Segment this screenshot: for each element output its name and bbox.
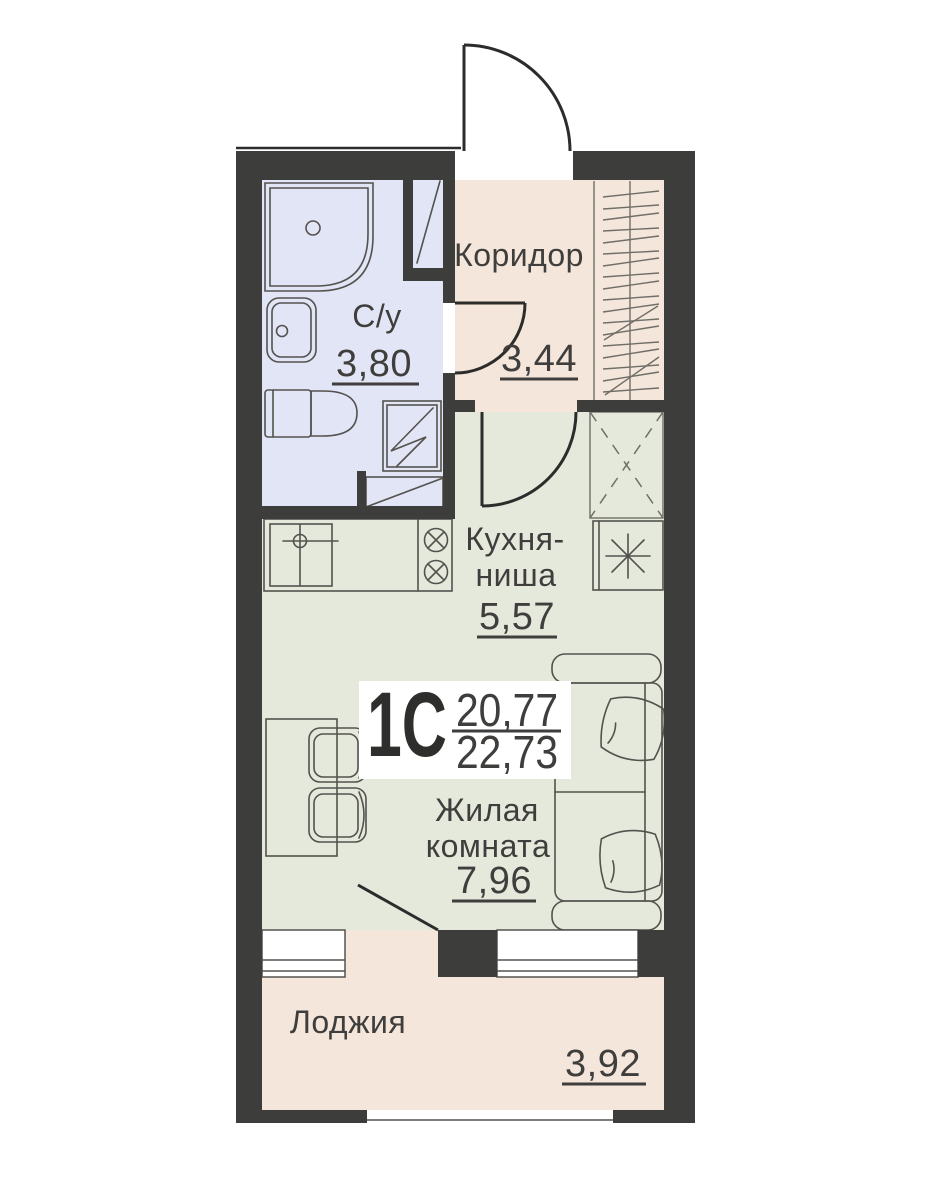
apartment-info-badge: 1С 20,77 22,73 (359, 674, 571, 779)
entrance-door-swing (464, 45, 570, 151)
kitchen-label-line2: ниша (475, 557, 556, 593)
kitchen-area: 5,57 (479, 596, 555, 638)
loggia-label: Лоджия (290, 1004, 406, 1040)
balcony-door-opening (345, 930, 438, 977)
window (262, 930, 345, 977)
window (497, 930, 638, 977)
corridor-label: Коридор (454, 237, 584, 273)
bathroom-label: С/у (352, 298, 402, 334)
loggia-window (367, 1110, 613, 1123)
living-area-label: 7,96 (456, 860, 532, 902)
living-label-line1: Жилая (435, 792, 539, 828)
bathroom-area: 3,80 (336, 343, 412, 385)
loggia-area: 3,92 (565, 1043, 641, 1085)
floor-plan: 1С 20,77 22,73 Коридор 3,44 С/у 3,80 Кух… (0, 0, 945, 1181)
living-label-line2: комната (426, 828, 551, 864)
total-area-value: 22,73 (456, 726, 558, 778)
apartment-type-label: 1С (367, 674, 447, 776)
kitchen-label-line1: Кухня- (465, 521, 564, 557)
corridor-area: 3,44 (501, 338, 577, 380)
